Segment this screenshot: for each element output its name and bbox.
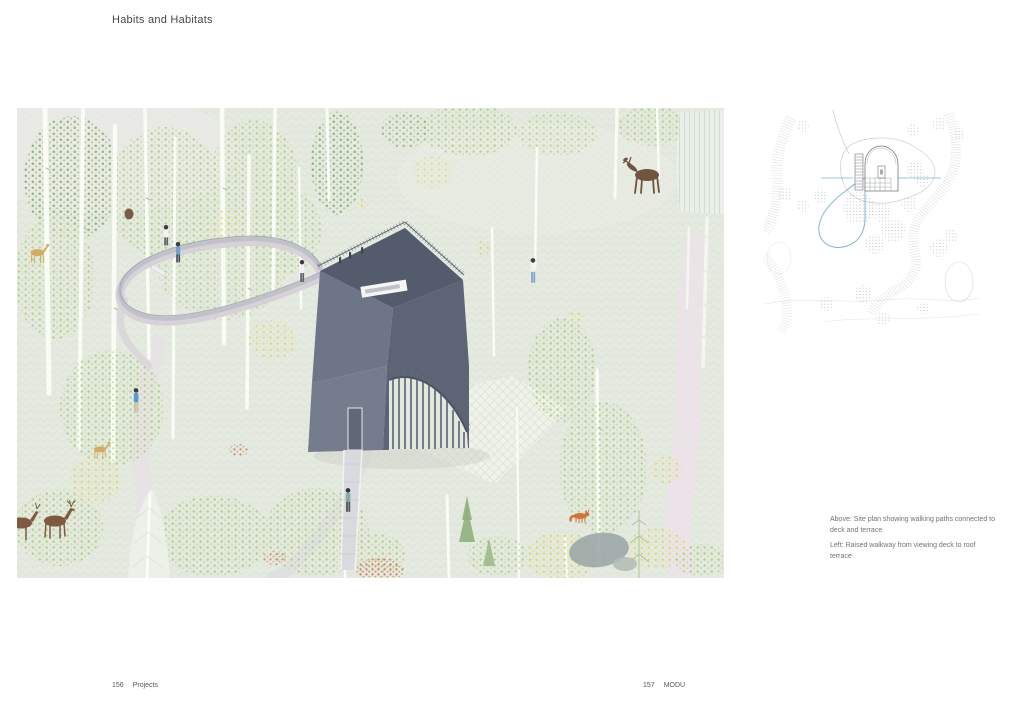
tower-door (348, 408, 362, 450)
small-animal (125, 209, 134, 220)
site-plan (763, 108, 981, 333)
section-label-right: MODU (664, 682, 685, 689)
pale-tree-mass (676, 110, 724, 214)
figure-captions: Above: Site plan showing walking paths c… (830, 515, 996, 562)
site-plan-trees (778, 117, 965, 325)
folio-left: 156 Projects (112, 682, 158, 689)
page-title: Habits and Habitats (112, 14, 213, 26)
page-number-left: 156 (112, 682, 124, 689)
caption-left: Left: Raised walkway from viewing deck t… (830, 541, 996, 562)
site-plan-paths (765, 110, 979, 332)
caption-above: Above: Site plan showing walking paths c… (830, 515, 996, 536)
folio-right: 157 MODU (643, 682, 685, 689)
page-number-right: 157 (643, 682, 655, 689)
section-label-left: Projects (133, 682, 158, 689)
site-plan-building (855, 146, 898, 191)
main-illustration (17, 108, 724, 578)
